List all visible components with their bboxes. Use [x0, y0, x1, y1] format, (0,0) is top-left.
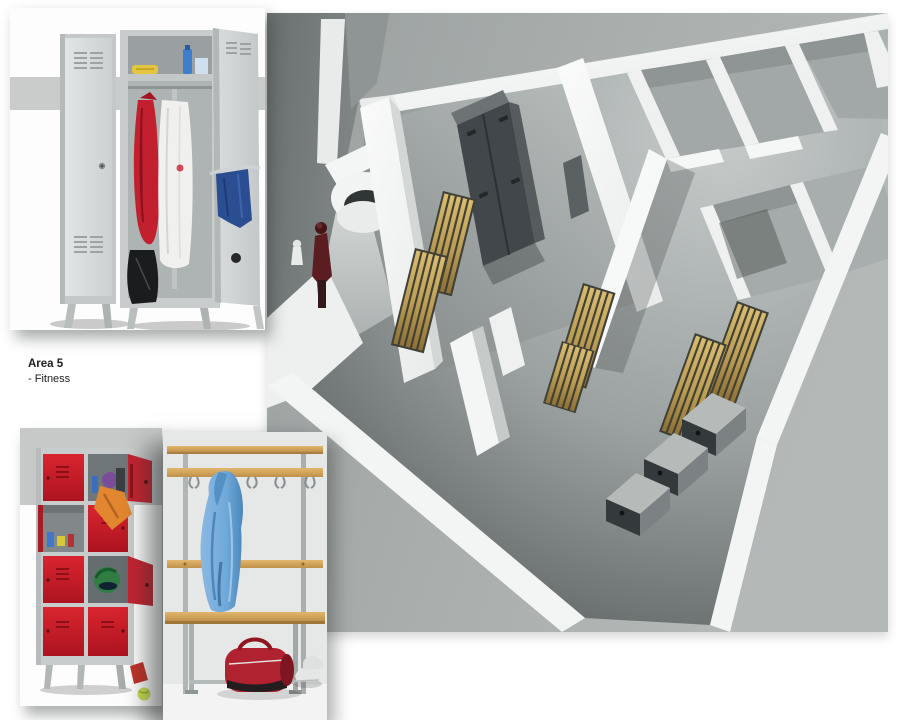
area-subtitle: - Fitness: [28, 372, 70, 387]
blue-bottle: [183, 49, 192, 74]
coat-badge: [177, 165, 184, 172]
catalogue-page: Area 5 - Fitness: [0, 0, 900, 720]
bench-photo: [163, 432, 327, 720]
wardrobe-lockers-photo: [10, 8, 265, 330]
back-rail: [167, 560, 323, 568]
white-coat: [158, 100, 192, 268]
area-title: Area 5: [28, 357, 70, 372]
open-locker: [120, 28, 264, 330]
top-shelf: [167, 446, 323, 452]
door-hook: [231, 253, 241, 263]
black-bag: [127, 250, 158, 304]
area-label: Area 5 - Fitness: [28, 357, 70, 387]
red-jacket: [134, 100, 159, 244]
red-lockers-photo: [20, 428, 162, 706]
hook-rail: [167, 468, 323, 477]
seat: [165, 612, 325, 621]
floor-plan-render: [267, 13, 888, 632]
